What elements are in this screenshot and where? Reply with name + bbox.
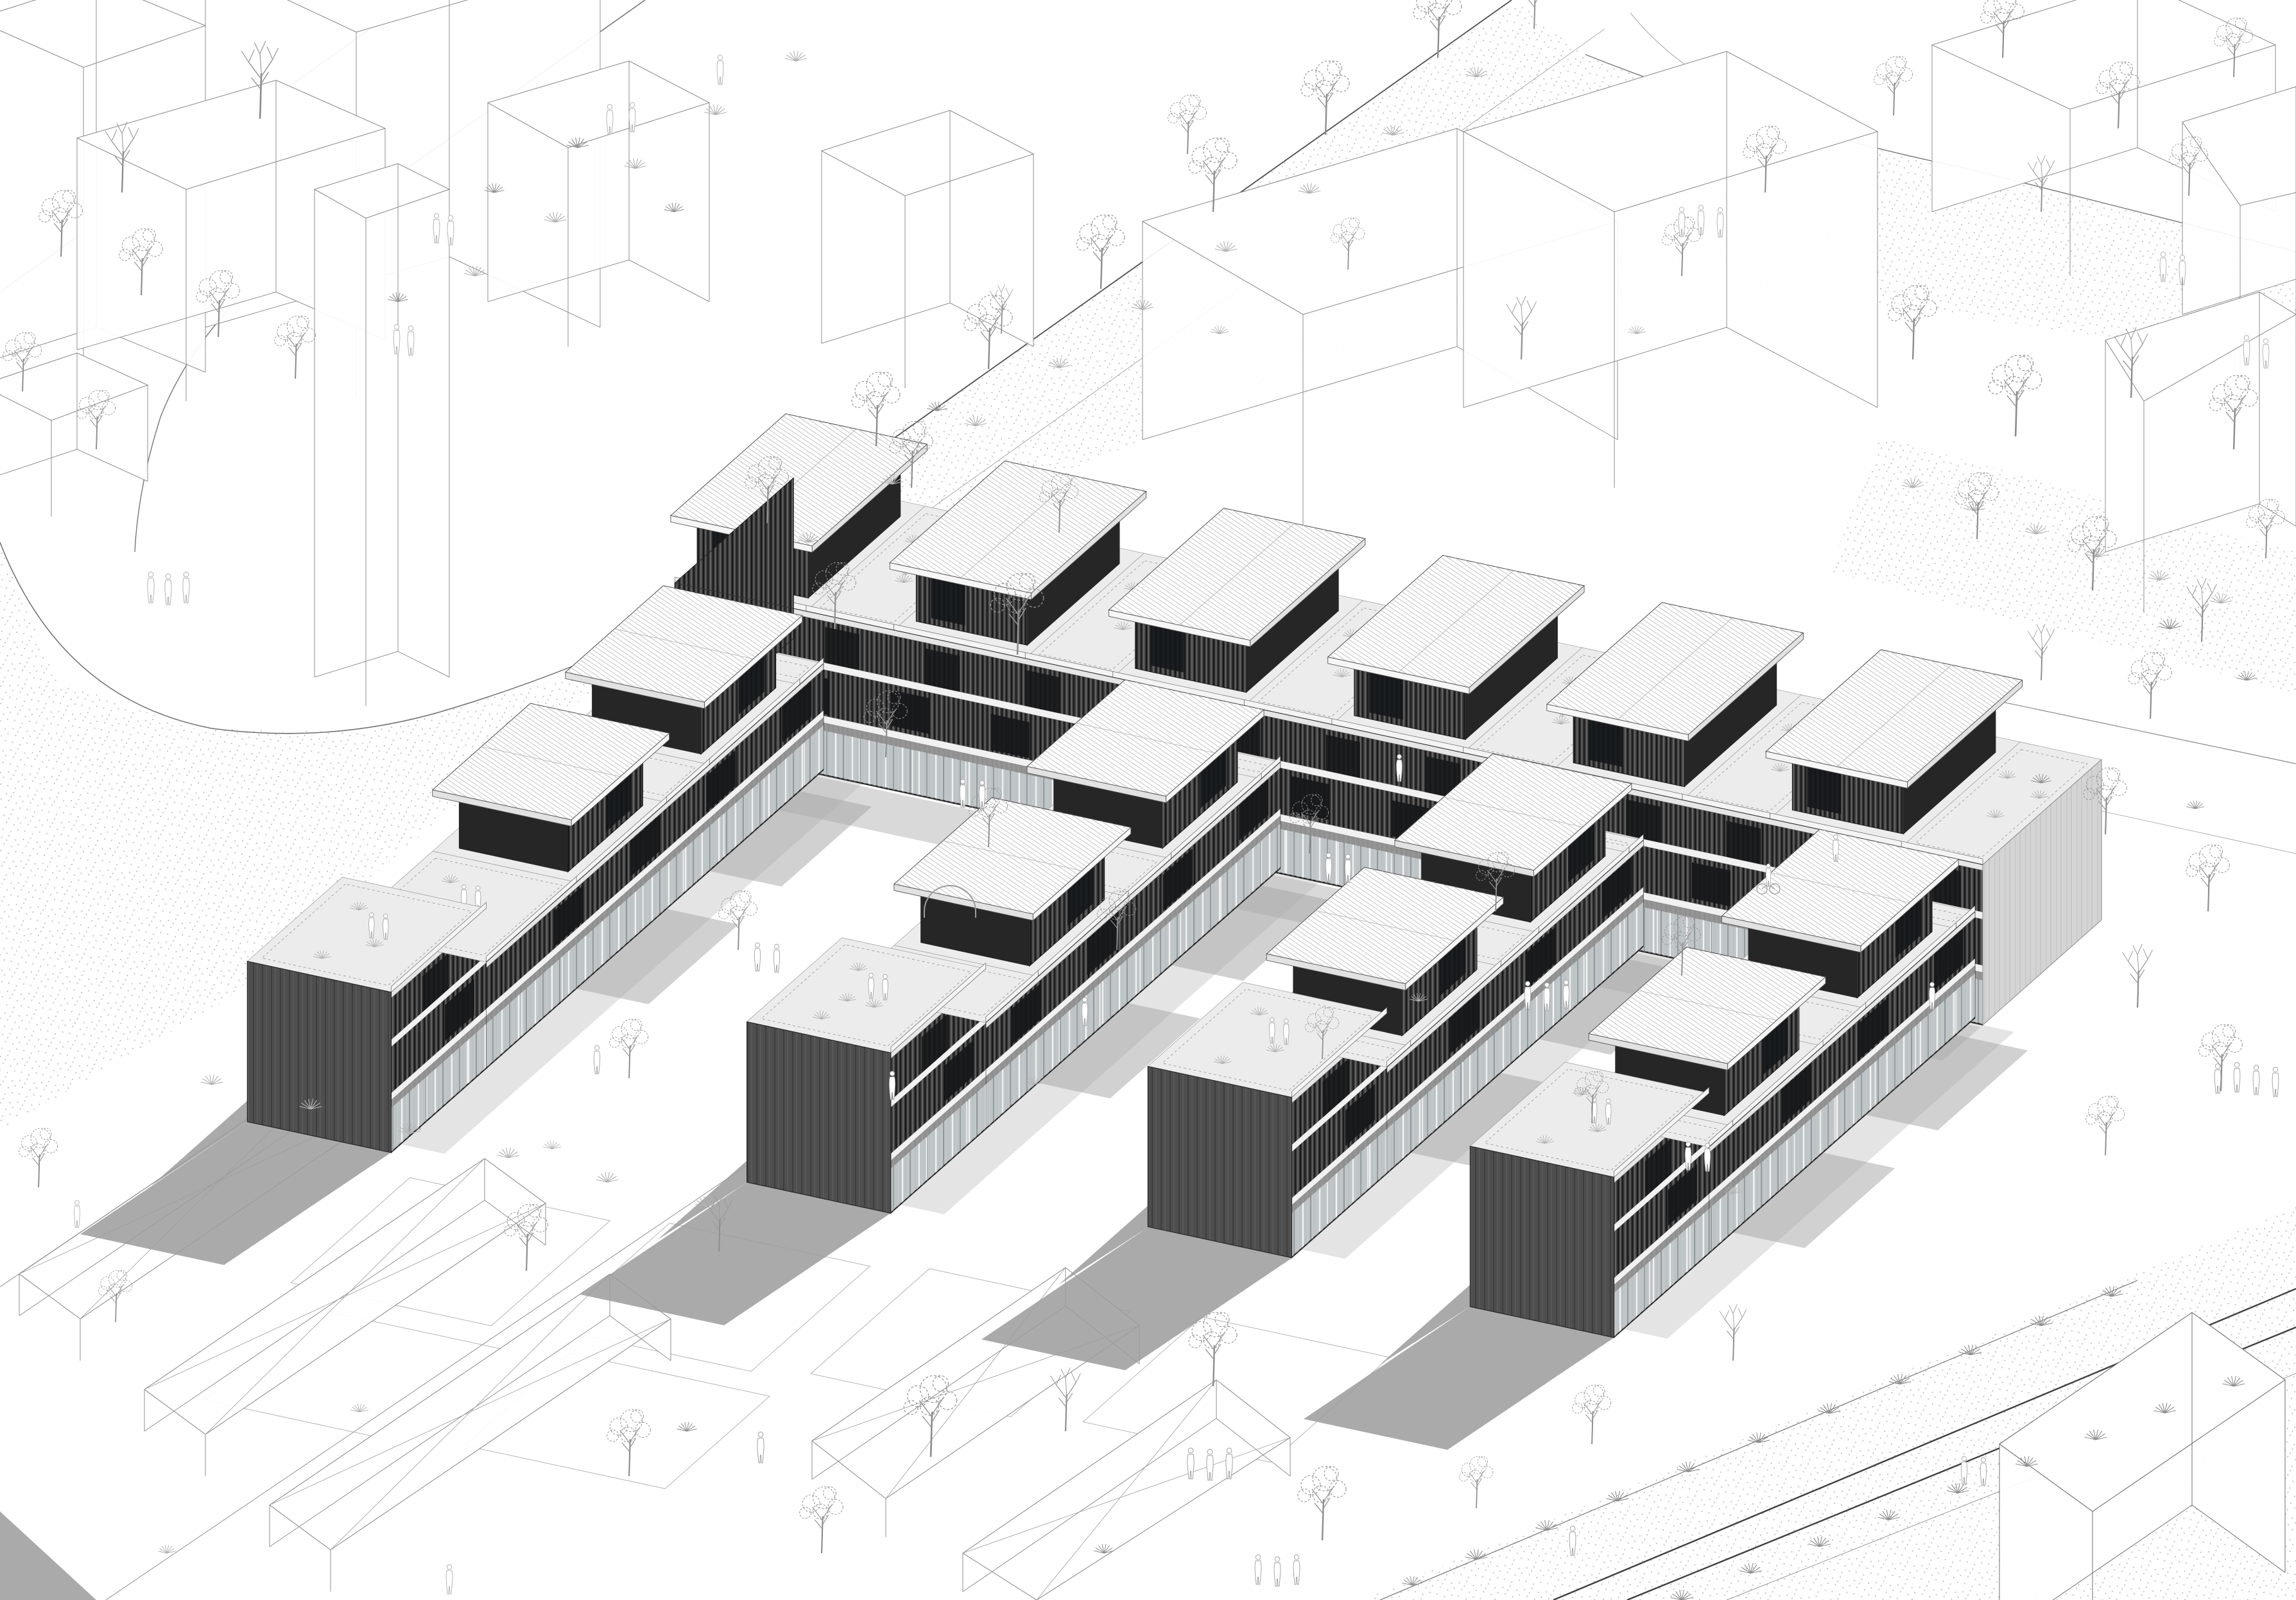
person-body bbox=[2253, 1071, 2259, 1095]
tree-branch bbox=[1528, 0, 1534, 7]
tree-branch bbox=[297, 343, 302, 352]
tree-foliage bbox=[1886, 72, 1899, 85]
tree-branch bbox=[1887, 86, 1894, 94]
person-head bbox=[1207, 1449, 1213, 1454]
tree-foliage bbox=[2089, 1103, 2104, 1119]
person-head bbox=[594, 1045, 599, 1050]
tree-foliage bbox=[1192, 147, 1211, 166]
tree-branch bbox=[1189, 120, 1194, 128]
tree-branch bbox=[981, 332, 989, 342]
leafy-tree bbox=[800, 1487, 843, 1554]
tree-twig bbox=[1071, 1372, 1076, 1382]
tree-trunk bbox=[1187, 121, 1189, 154]
tree-foliage bbox=[2086, 1114, 2096, 1124]
person-silhouette bbox=[2272, 1067, 2279, 1097]
tree-foliage bbox=[31, 1144, 44, 1157]
leafy-tree bbox=[2086, 1096, 2125, 1155]
wireframe-building bbox=[0, 353, 148, 517]
tree-foliage bbox=[855, 381, 874, 400]
tree-trunk bbox=[2221, 1054, 2222, 1091]
tree-twig bbox=[1720, 1311, 1725, 1320]
tree-foliage bbox=[2213, 1025, 2234, 1047]
tree-trunk bbox=[1101, 248, 1102, 289]
tree-branch bbox=[1430, 21, 1438, 31]
tree-branch bbox=[1585, 1415, 1592, 1423]
tree-foliage bbox=[2128, 673, 2140, 684]
tree-foliage bbox=[610, 1418, 627, 1435]
tree-foliage bbox=[1575, 1392, 1591, 1407]
leafy-tree bbox=[1573, 1385, 1611, 1444]
tree-twig bbox=[1738, 1308, 1742, 1317]
tree-branch bbox=[1471, 1482, 1477, 1489]
tree-trunk bbox=[2208, 874, 2209, 911]
tree-foliage bbox=[2258, 515, 2272, 528]
wireframe-building bbox=[822, 110, 1033, 388]
tree-foliage bbox=[1298, 1489, 1311, 1502]
tree-foliage bbox=[1180, 95, 1199, 114]
tree-foliage bbox=[621, 1427, 635, 1442]
tree-foliage bbox=[1417, 0, 1436, 12]
tree-trunk bbox=[2041, 648, 2042, 680]
person-head bbox=[1930, 983, 1935, 987]
tree-twig bbox=[2143, 949, 2148, 959]
tree-foliage bbox=[621, 1035, 635, 1048]
tree-foliage bbox=[1313, 1486, 1329, 1502]
person-silhouette bbox=[74, 1201, 80, 1228]
leafy-tree bbox=[719, 891, 757, 950]
cast-shadow bbox=[80, 1122, 391, 1265]
tree-branch bbox=[1205, 175, 1214, 185]
tree-branch bbox=[1535, 0, 1541, 3]
tree-branch bbox=[2033, 639, 2042, 651]
tree-trunk bbox=[2137, 970, 2139, 1008]
tree-twig bbox=[2148, 950, 2152, 959]
tree-branch bbox=[1895, 82, 1900, 90]
person-head bbox=[1284, 1019, 1288, 1023]
person-body bbox=[2272, 1073, 2279, 1097]
tree-twig bbox=[1733, 1304, 1737, 1313]
person-head bbox=[960, 779, 965, 784]
leafy-tree bbox=[610, 1019, 648, 1078]
person-body bbox=[1255, 1561, 1261, 1585]
tree-branch bbox=[630, 1438, 636, 1447]
person-head bbox=[890, 1071, 894, 1076]
person-body bbox=[165, 580, 171, 605]
person-head bbox=[1564, 980, 1568, 985]
tree-branch bbox=[868, 409, 877, 419]
person-silhouette bbox=[1255, 1555, 1261, 1585]
tree-foliage bbox=[800, 1507, 811, 1518]
tree-branch bbox=[623, 1049, 629, 1057]
tree-twig bbox=[2046, 628, 2050, 637]
person-head bbox=[2215, 1064, 2220, 1069]
person-head bbox=[1981, 1458, 1985, 1462]
person-head bbox=[2234, 1063, 2239, 1067]
tree-foliage bbox=[607, 1430, 619, 1441]
person-head bbox=[883, 974, 887, 978]
person-head bbox=[2273, 1067, 2277, 1072]
cast-shadow bbox=[1304, 1307, 1614, 1450]
tree-trunk bbox=[629, 1045, 630, 1078]
tree-trunk bbox=[629, 1439, 630, 1476]
tree-foliage bbox=[813, 1487, 835, 1509]
tree-foliage bbox=[1091, 215, 1116, 239]
person-head bbox=[462, 885, 465, 889]
tree-branch bbox=[2152, 681, 2157, 690]
tree-foliage bbox=[730, 906, 744, 920]
tree-foliage bbox=[2005, 0, 2017, 4]
tree-foliage bbox=[2202, 1033, 2219, 1050]
window-dark bbox=[925, 648, 960, 692]
person-head bbox=[774, 944, 779, 949]
person-body bbox=[446, 1570, 453, 1594]
tree-foliage bbox=[1204, 157, 1220, 174]
tree-branch bbox=[877, 404, 884, 414]
leafy-tree bbox=[1459, 1457, 1493, 1509]
tree-twig bbox=[2041, 633, 2042, 647]
tree-branch bbox=[990, 327, 996, 337]
tree-foliage bbox=[1168, 113, 1178, 123]
tree-branch bbox=[32, 1158, 39, 1166]
tree-foliage bbox=[1316, 80, 1333, 97]
tree-foliage bbox=[2005, 377, 2024, 395]
person-head bbox=[1570, 1526, 1575, 1531]
tree-foliage bbox=[1204, 1332, 1220, 1348]
tree-foliage bbox=[964, 318, 977, 331]
tree-foliage bbox=[1192, 1321, 1211, 1341]
tree-foliage bbox=[1428, 3, 1445, 20]
tree-trunk bbox=[1913, 318, 1914, 359]
tree-trunk bbox=[39, 1155, 40, 1187]
tree-foliage bbox=[19, 1146, 30, 1157]
person-head bbox=[1607, 1099, 1610, 1103]
tree-foliage bbox=[1204, 138, 1228, 162]
person-head bbox=[1698, 205, 1703, 210]
person-body bbox=[2234, 1069, 2240, 1092]
tree-branch bbox=[1318, 98, 1326, 108]
tree-foliage bbox=[1983, 0, 2001, 17]
person-head bbox=[1544, 983, 1549, 987]
shrub-tuft bbox=[350, 1404, 368, 1412]
leafy-tree bbox=[1189, 1312, 1237, 1386]
tree-foliage bbox=[1304, 70, 1324, 89]
tree-branch bbox=[519, 1237, 527, 1246]
person-head bbox=[1326, 853, 1331, 857]
tree-branch bbox=[739, 916, 745, 924]
tree-foliage bbox=[2142, 653, 2164, 675]
tree-foliage bbox=[1313, 1467, 1337, 1491]
tree-branch bbox=[1593, 1410, 1598, 1418]
person-head bbox=[1082, 997, 1087, 1002]
tree-foliage bbox=[22, 1135, 37, 1151]
tree-foliage bbox=[1189, 1335, 1202, 1348]
tree-foliage bbox=[1316, 61, 1340, 85]
tree-foliage bbox=[813, 1504, 828, 1519]
person-body bbox=[773, 950, 779, 972]
tree-foliage bbox=[1888, 308, 1901, 321]
tree-twig bbox=[2028, 631, 2033, 639]
tree-branch bbox=[1725, 1320, 1734, 1332]
tree-foliage bbox=[2131, 660, 2148, 678]
tree-foliage bbox=[287, 332, 301, 347]
tree-branch bbox=[1214, 1344, 1221, 1354]
tree-trunk bbox=[738, 917, 739, 950]
person-head bbox=[184, 572, 189, 577]
tree-foliage bbox=[2213, 1042, 2227, 1057]
drawing-root bbox=[0, 0, 2296, 1600]
tree-trunk bbox=[116, 1293, 116, 1322]
tree-trunk bbox=[2105, 797, 2107, 834]
tree-branch bbox=[1057, 1385, 1067, 1399]
tree-twig bbox=[2137, 944, 2142, 954]
person-silhouette bbox=[2234, 1063, 2240, 1092]
tree-trunk bbox=[2105, 1123, 2107, 1155]
person-head bbox=[2180, 255, 2184, 260]
tree-branch bbox=[110, 1296, 116, 1303]
tree-branch bbox=[815, 1520, 822, 1529]
person-head bbox=[1718, 208, 1722, 212]
tree-branch bbox=[1727, 1331, 1733, 1339]
tree-trunk bbox=[295, 344, 297, 379]
tree-branch bbox=[2259, 529, 2266, 537]
person-head bbox=[869, 973, 873, 977]
tree-foliage bbox=[277, 323, 294, 340]
tree-branch bbox=[2267, 524, 2272, 533]
end-gable bbox=[1470, 1146, 1614, 1338]
wirebox-face bbox=[315, 164, 398, 677]
person-silhouette bbox=[594, 1045, 600, 1074]
tree-foliage bbox=[2098, 1096, 2117, 1115]
person-silhouette bbox=[717, 55, 723, 85]
tree-branch bbox=[289, 347, 296, 356]
tree-twig bbox=[2128, 951, 2133, 961]
shrub-tuft bbox=[543, 1140, 561, 1149]
tree-branch bbox=[16, 362, 22, 370]
person-head bbox=[2263, 339, 2268, 343]
shrub-tuft bbox=[785, 51, 807, 61]
cast-shadow bbox=[580, 1182, 891, 1325]
person-head bbox=[1345, 854, 1350, 859]
person-head bbox=[1679, 207, 1684, 212]
person-head bbox=[1227, 1448, 1232, 1453]
tree-foliage bbox=[2189, 853, 2206, 870]
person-silhouette bbox=[1274, 1557, 1281, 1587]
leafy-tree bbox=[1874, 56, 1913, 116]
person-head bbox=[980, 780, 984, 785]
tree-branch bbox=[1058, 1398, 1066, 1407]
leafy-tree bbox=[1168, 95, 1207, 154]
tree-branch bbox=[823, 1515, 829, 1524]
tree-foliage bbox=[1994, 0, 2016, 13]
person-silhouette bbox=[757, 1432, 764, 1463]
tree-foliage bbox=[1301, 1475, 1320, 1495]
person-head bbox=[1705, 1143, 1709, 1148]
person-body bbox=[757, 1438, 764, 1463]
tree-trunk bbox=[1894, 83, 1895, 116]
bare-tree bbox=[2028, 624, 2055, 680]
tree-foliage bbox=[610, 1037, 620, 1047]
tree-branch bbox=[2107, 796, 2112, 805]
tree-foliage bbox=[802, 1495, 820, 1512]
person-body bbox=[754, 949, 760, 971]
tree-foliage bbox=[612, 1026, 628, 1042]
tree-trunk bbox=[2150, 682, 2152, 719]
tree-foliage bbox=[1076, 237, 1089, 250]
tree-foliage bbox=[2249, 506, 2265, 522]
wireframe-building bbox=[1463, 51, 1877, 488]
tree-branch bbox=[2209, 873, 2215, 882]
person-head bbox=[2161, 252, 2165, 257]
tree-foliage bbox=[1470, 1457, 1487, 1474]
window-dark bbox=[825, 627, 859, 670]
bare-tree bbox=[1720, 1304, 1747, 1361]
tree-trunk bbox=[1733, 1328, 1734, 1361]
tree-branch bbox=[1905, 322, 1913, 332]
tree-foliage bbox=[2186, 865, 2198, 877]
tree-twig bbox=[1066, 1378, 1067, 1394]
tree-foliage bbox=[2005, 356, 2032, 383]
person-body bbox=[148, 578, 154, 603]
leafy-tree bbox=[1298, 1467, 1346, 1540]
tree-trunk bbox=[1213, 1345, 1214, 1386]
tree-branch bbox=[2201, 878, 2209, 887]
tree-foliage bbox=[1189, 160, 1202, 173]
bare-tree bbox=[2123, 944, 2153, 1008]
tree-branch bbox=[40, 1153, 45, 1162]
tree-trunk bbox=[822, 1516, 823, 1553]
person-head bbox=[1270, 1018, 1274, 1022]
person-head bbox=[148, 572, 153, 577]
tree-branch bbox=[1205, 1349, 1214, 1359]
shrub-tuft bbox=[596, 1172, 619, 1182]
tree-branch bbox=[2042, 178, 2048, 186]
tree-foliage bbox=[1989, 380, 2003, 394]
tree-trunk bbox=[1476, 1479, 1477, 1508]
tree-branch bbox=[2107, 1121, 2112, 1130]
shrub-tuft bbox=[158, 1545, 176, 1553]
tree-branch bbox=[2017, 390, 2024, 401]
person-body bbox=[2214, 1070, 2221, 1094]
person-silhouette bbox=[754, 943, 760, 971]
tree-trunk bbox=[1322, 1499, 1324, 1540]
person-head bbox=[166, 574, 171, 579]
tree-branch bbox=[2128, 961, 2139, 976]
tree-foliage bbox=[2142, 670, 2157, 685]
tree-branch bbox=[622, 1443, 630, 1452]
person-head bbox=[1256, 1555, 1260, 1560]
tree-foliage bbox=[1470, 1470, 1481, 1482]
leafy-tree bbox=[607, 1410, 651, 1477]
tree-branch bbox=[2007, 395, 2016, 407]
tree-foliage bbox=[287, 316, 307, 336]
tree-branch bbox=[2222, 1053, 2228, 1062]
tree-foliage bbox=[2200, 845, 2222, 867]
person-head bbox=[1294, 1555, 1299, 1560]
person-head bbox=[1525, 981, 1530, 986]
tree-branch bbox=[2035, 651, 2041, 659]
tree-foliage bbox=[1886, 56, 1905, 76]
tree-foliage bbox=[1573, 1403, 1583, 1413]
tree-foliage bbox=[867, 391, 883, 408]
tree-twig bbox=[1742, 1309, 1746, 1318]
tree-twig bbox=[1729, 1305, 1733, 1314]
person-silhouette bbox=[773, 944, 779, 972]
person-head bbox=[2254, 1065, 2258, 1070]
person-head bbox=[2244, 336, 2249, 340]
person-body bbox=[1293, 1561, 1300, 1585]
tree-foliage bbox=[730, 891, 750, 910]
tree-twig bbox=[2137, 954, 2139, 970]
tree-foliage bbox=[1091, 234, 1108, 251]
window-dark bbox=[1726, 821, 1761, 865]
tree-foliage bbox=[1080, 224, 1099, 243]
end-gable bbox=[247, 961, 391, 1153]
wirebox-face bbox=[398, 164, 449, 677]
person-head bbox=[384, 914, 388, 918]
tree-foliage bbox=[2247, 517, 2257, 528]
person-head bbox=[75, 1201, 80, 1205]
tree-foliage bbox=[1180, 110, 1193, 124]
tree-branch bbox=[1102, 246, 1109, 257]
tree-foliage bbox=[1413, 6, 1426, 19]
tree-trunk bbox=[1592, 1411, 1593, 1444]
tree-branch bbox=[1315, 1503, 1323, 1513]
wireframe-building bbox=[963, 1380, 1290, 1600]
person-body bbox=[74, 1206, 80, 1228]
tree-foliage bbox=[1301, 83, 1314, 96]
window-dark bbox=[1325, 735, 1360, 778]
tree-branch bbox=[2042, 646, 2048, 655]
person-head bbox=[607, 105, 612, 109]
shrub-tuft bbox=[677, 1422, 696, 1431]
tree-twig bbox=[2050, 629, 2054, 637]
site-axonometric-drawing bbox=[0, 0, 2296, 1600]
cast-shadow bbox=[0, 1511, 96, 1600]
tree-foliage bbox=[2200, 863, 2214, 877]
tree-trunk bbox=[1066, 1394, 1067, 1431]
person-head bbox=[1686, 1142, 1690, 1146]
person-body bbox=[594, 1051, 600, 1074]
person-silhouette bbox=[2253, 1065, 2259, 1095]
tree-twig bbox=[1725, 1311, 1729, 1320]
end-gable bbox=[1148, 1067, 1291, 1258]
end-gable bbox=[747, 1022, 891, 1213]
person-head bbox=[755, 943, 759, 947]
person-head bbox=[476, 886, 479, 890]
tree-branch bbox=[2139, 970, 2145, 979]
window-dark bbox=[1025, 670, 1060, 714]
person-head bbox=[758, 1432, 763, 1437]
tree-foliage bbox=[1462, 1463, 1475, 1476]
tree-trunk bbox=[1325, 94, 1327, 135]
tree-foliage bbox=[1584, 1400, 1598, 1414]
person-body bbox=[1274, 1563, 1281, 1587]
leafy-tree bbox=[275, 316, 316, 379]
person-head bbox=[1766, 864, 1770, 868]
leafy-tree bbox=[1076, 215, 1125, 289]
tree-foliage bbox=[621, 1019, 641, 1038]
tree-twig bbox=[2133, 945, 2137, 954]
tree-foliage bbox=[1874, 74, 1885, 85]
person-head bbox=[434, 214, 438, 218]
tree-branch bbox=[1734, 1327, 1739, 1335]
person-head bbox=[448, 216, 453, 220]
person-head bbox=[1834, 835, 1838, 839]
tree-foliage bbox=[275, 335, 286, 346]
person-body bbox=[183, 578, 189, 603]
tree-branch bbox=[1067, 1393, 1073, 1402]
person-silhouette bbox=[165, 574, 171, 605]
